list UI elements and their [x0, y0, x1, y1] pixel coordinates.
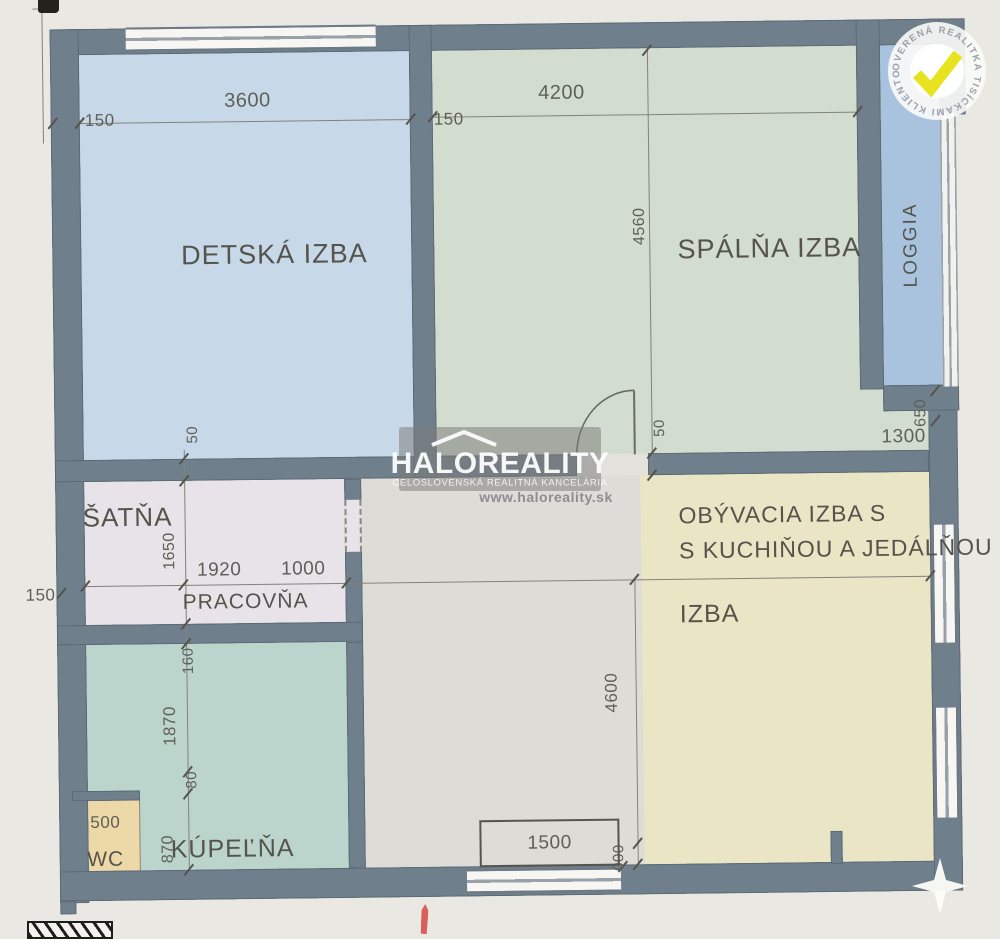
wall-kitchen-stub — [830, 831, 842, 864]
room-hall — [359, 473, 649, 868]
dim-window-width: 1500 — [527, 832, 572, 855]
label-wc: WC — [87, 848, 124, 872]
dim-spalna-height: 4560 — [631, 207, 649, 245]
photo-edge-mark — [38, 0, 59, 13]
watermark-url: www.haloreality.sk — [479, 489, 613, 505]
dim-loggia-width: 1300 — [881, 426, 926, 449]
window-right-lower — [934, 707, 959, 817]
label-satna: ŠATŇA — [82, 502, 172, 534]
dim-window-box: 1500 — [479, 819, 620, 868]
dim-detska-width: 3600 — [224, 89, 271, 113]
label-obyvacia-line2: S KUCHIŇOU A JEDÁLŇOU — [679, 533, 993, 564]
dim-wall-mid-left: 50 — [184, 426, 201, 444]
dim-kupelna-top: 160 — [180, 647, 197, 674]
label-spalna: SPÁLŇA IZBA — [677, 232, 861, 265]
dim-satna-width: 1920 — [197, 559, 242, 582]
label-detska: DETSKÁ IZBA — [181, 238, 368, 271]
loggia-railing — [940, 112, 959, 386]
dim-kupelna-height: 1870 — [160, 706, 180, 746]
wall-mid-horizontal-right — [648, 450, 929, 475]
wall-below-satna — [57, 622, 363, 646]
verified-badge: OVERENÁ REALITKA TISÍCKAMI KLIENTOV ✶ — [884, 18, 990, 124]
dimension-extension-topleft — [41, 8, 44, 144]
wall-wc-top — [72, 790, 140, 801]
wall-kupelna-right — [346, 642, 366, 868]
dim-wc-width: 500 — [90, 813, 120, 833]
label-pracovna: PRACOVŇA — [183, 589, 309, 615]
wall-spalna-loggia — [856, 19, 885, 389]
dim-kupelna-gap: 80 — [183, 771, 200, 789]
watermark-band: HALOREALITY CELOSLOVENSKÁ REALITNÁ KANCE… — [399, 427, 601, 491]
satna-wall-opening — [344, 500, 362, 552]
dim-satna-height: 1650 — [161, 532, 179, 570]
dim-wall-mid-right: 50 — [651, 419, 668, 437]
section-hatch-mark — [27, 921, 113, 939]
window-bottom — [467, 868, 621, 894]
wall-stub-bottom-left — [60, 901, 76, 914]
house-roof-icon — [429, 429, 499, 447]
dim-wall-top-mid: 150 — [434, 109, 464, 129]
label-obyvacia-line1: OBÝVACIA IZBA S — [678, 500, 886, 530]
window-detska — [126, 24, 376, 51]
floorplan-photo: 3600 150 4200 150 4560 650 1300 50 50 15… — [0, 0, 1000, 939]
dim-pracovna-width: 1000 — [281, 558, 326, 581]
label-kupelna: KÚPEĽŇA — [171, 834, 295, 865]
dim-wall-top-left: 150 — [85, 111, 115, 131]
watermark-brand: HALOREALITY — [391, 447, 610, 481]
dim-loggia-depth: 650 — [912, 399, 930, 427]
label-loggia: LOGGIA — [900, 202, 923, 287]
watermark-subtitle: CELOSLOVENSKÁ REALITNÁ KANCELÁRIA — [392, 478, 607, 489]
dim-spalna-width: 4200 — [538, 81, 585, 105]
label-obyvacia-line3: IZBA — [680, 600, 740, 630]
dim-obyvacia-height: 4600 — [601, 673, 621, 713]
sparkle-icon — [912, 858, 968, 914]
dim-left-margin: 150 — [25, 585, 55, 605]
